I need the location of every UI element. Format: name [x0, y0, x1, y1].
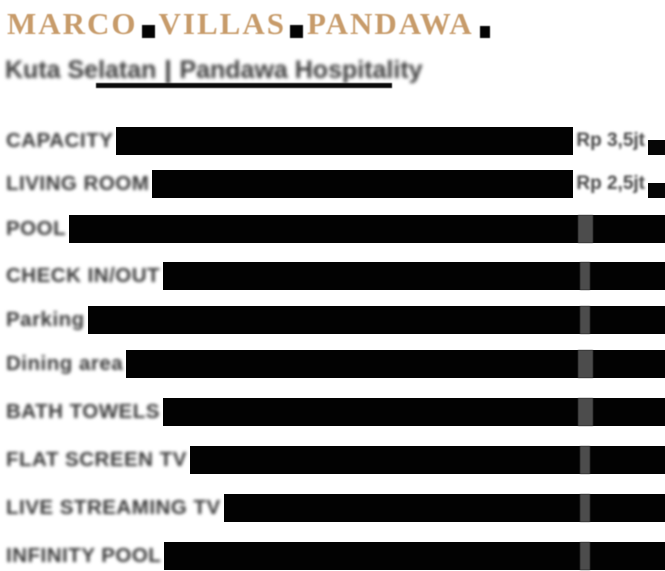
- row-label: Dining area: [0, 350, 123, 378]
- page-title: MARCO VILLAS PANDAWA: [7, 5, 494, 43]
- row-label: CHECK IN/OUT: [0, 262, 160, 290]
- artifact-blob: [480, 26, 490, 38]
- row-label: LIVING ROOM: [0, 170, 149, 198]
- bar-notch: [578, 398, 593, 426]
- row-label: POOL: [0, 215, 66, 243]
- artifact-strip: [96, 83, 392, 88]
- redaction-bar: [163, 262, 665, 290]
- artifact-blob: [290, 25, 303, 38]
- title-word: PANDAWA: [307, 5, 474, 43]
- row-label: FLAT SCREEN TV: [0, 446, 187, 474]
- row-label: Parking: [0, 306, 85, 334]
- redaction-bar: [116, 127, 573, 155]
- subtitle-left: Kuta Selatan: [5, 56, 156, 84]
- bar-notch: [578, 215, 593, 243]
- list-row: CHECK IN/OUT: [0, 262, 665, 290]
- list-row: FLAT SCREEN TV: [0, 446, 665, 474]
- bar-notch: [580, 542, 590, 570]
- list-row: INFINITY POOL: [0, 542, 665, 570]
- redaction-bar: [164, 542, 665, 570]
- redaction-bar: [69, 215, 665, 243]
- row-value: Rp 3,5jt: [573, 127, 648, 155]
- subtitle-separator: |: [164, 56, 171, 84]
- artifact-blob: [648, 140, 665, 155]
- subtitle-location: Kuta Selatan|Pandawa Hospitality: [5, 55, 423, 85]
- subtitle-right: Pandawa Hospitality: [179, 56, 422, 84]
- bar-notch: [578, 350, 593, 378]
- title-word: VILLAS: [159, 5, 286, 43]
- list-row: BATH TOWELS: [0, 398, 665, 426]
- list-row: Dining area: [0, 350, 665, 378]
- row-value: Rp 2,5jt: [573, 170, 648, 198]
- row-label: BATH TOWELS: [0, 398, 160, 426]
- artifact-blob: [648, 183, 665, 198]
- row-label: INFINITY POOL: [0, 542, 161, 570]
- bar-notch: [580, 262, 590, 290]
- bar-notch: [580, 494, 590, 522]
- list-row: CAPACITYRp 3,5jt: [0, 127, 665, 155]
- title-word: MARCO: [7, 5, 138, 43]
- bar-notch: [580, 306, 590, 334]
- villa-info-sheet: { "colors": { "title_gold": "#c49a6b", "…: [0, 0, 665, 571]
- redaction-bar: [88, 306, 665, 334]
- list-row: Parking: [0, 306, 665, 334]
- list-row: LIVING ROOMRp 2,5jt: [0, 170, 665, 198]
- redaction-bar: [163, 398, 665, 426]
- row-label: CAPACITY: [0, 127, 113, 155]
- list-row: POOL: [0, 215, 665, 243]
- list-row: LIVE STREAMING TV: [0, 494, 665, 522]
- artifact-blob: [142, 25, 155, 38]
- redaction-bar: [126, 350, 665, 378]
- redaction-bar: [190, 446, 665, 474]
- redaction-bar: [152, 170, 573, 198]
- row-label: LIVE STREAMING TV: [0, 494, 221, 522]
- redaction-bar: [224, 494, 665, 522]
- bar-notch: [580, 446, 590, 474]
